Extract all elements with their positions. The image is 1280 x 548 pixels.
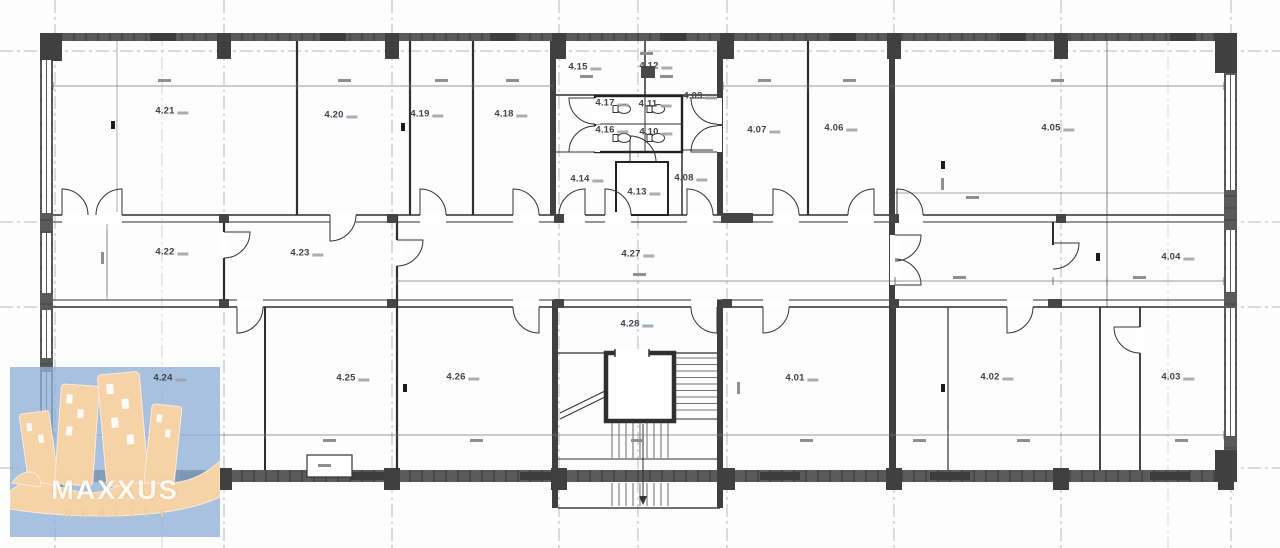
room-area-smudge	[618, 131, 629, 134]
room-number: 4.13	[627, 187, 646, 198]
room-area-smudge	[176, 379, 187, 382]
room-label-4.12: 4.12	[639, 61, 672, 72]
room-label-4.02: 4.02	[980, 372, 1013, 383]
room-number: 4.18	[494, 109, 513, 120]
room-label-4.19: 4.19	[410, 109, 443, 120]
room-label-4.11: 4.11	[639, 99, 672, 110]
room-number: 4.21	[155, 106, 174, 117]
room-number: 4.14	[570, 174, 589, 185]
room-number: 4.28	[620, 319, 639, 330]
room-label-4.26: 4.26	[446, 372, 479, 383]
room-label-4.09: 4.09	[683, 91, 716, 102]
room-label-4.10: 4.10	[639, 127, 672, 138]
room-area-smudge	[643, 325, 654, 328]
room-area-smudge	[591, 68, 602, 71]
room-number: 4.01	[785, 373, 804, 384]
floor-plan-page: MAXXUS REALITY 4.214.204.194.184.154.124…	[0, 0, 1280, 548]
elevator-shaft	[606, 353, 674, 421]
room-area-smudge	[660, 105, 671, 108]
room-area-smudge	[1184, 378, 1195, 381]
logo-subtitle: REALITY	[10, 508, 220, 520]
room-label-4.04: 4.04	[1161, 252, 1194, 263]
room-label-4.18: 4.18	[494, 109, 527, 120]
room-area-smudge	[1184, 258, 1195, 261]
room-area-smudge	[178, 253, 189, 256]
room-number: 4.07	[747, 125, 766, 136]
room-area-smudge	[347, 116, 358, 119]
logo-title: MAXXUS	[10, 475, 220, 506]
room-number: 4.25	[336, 373, 355, 384]
room-number: 4.16	[595, 125, 614, 136]
room-area-smudge	[697, 179, 708, 182]
room-label-4.22: 4.22	[155, 247, 188, 258]
room-number: 4.23	[290, 248, 309, 259]
room-area-smudge	[618, 104, 629, 107]
room-label-4.05: 4.05	[1041, 123, 1074, 134]
room-number: 4.17	[595, 98, 614, 109]
room-number: 4.08	[674, 173, 693, 184]
room-number: 4.12	[639, 61, 658, 72]
room-label-4.03: 4.03	[1161, 372, 1194, 383]
room-area-smudge	[644, 255, 655, 258]
room-label-4.01: 4.01	[785, 373, 818, 384]
maxxus-logo: MAXXUS REALITY	[10, 367, 220, 537]
room-number: 4.09	[683, 91, 702, 102]
room-number: 4.04	[1161, 252, 1180, 263]
room-area-smudge	[662, 67, 673, 70]
room-label-4.08: 4.08	[674, 173, 707, 184]
room-area-smudge	[517, 115, 528, 118]
room-label-4.25: 4.25	[336, 373, 369, 384]
room-label-4.07: 4.07	[747, 125, 780, 136]
room-number: 4.19	[410, 109, 429, 120]
room-number: 4.11	[639, 99, 658, 110]
room-label-4.16: 4.16	[595, 125, 628, 136]
room-area-smudge	[178, 112, 189, 115]
room-label-4.15: 4.15	[568, 62, 601, 73]
room-label-4.13: 4.13	[627, 187, 660, 198]
room-label-4.23: 4.23	[290, 248, 323, 259]
room-label-4.06: 4.06	[824, 123, 857, 134]
room-label-4.20: 4.20	[324, 110, 357, 121]
room-area-smudge	[808, 379, 819, 382]
room-area-smudge	[359, 379, 370, 382]
room-area-smudge	[650, 193, 661, 196]
room-number: 4.02	[980, 372, 999, 383]
room-label-4.17: 4.17	[595, 98, 628, 109]
room-area-smudge	[847, 129, 858, 132]
room-label-4.28: 4.28	[620, 319, 653, 330]
room-number: 4.26	[446, 372, 465, 383]
room-number: 4.20	[324, 110, 343, 121]
room-area-smudge	[469, 378, 480, 381]
room-number: 4.05	[1041, 123, 1060, 134]
room-area-smudge	[1003, 378, 1014, 381]
room-label-4.14: 4.14	[570, 174, 603, 185]
room-number: 4.24	[153, 373, 172, 384]
room-area-smudge	[662, 133, 673, 136]
room-label-4.24: 4.24	[153, 373, 186, 384]
room-label-4.27: 4.27	[621, 249, 654, 260]
room-number: 4.22	[155, 247, 174, 258]
room-area-smudge	[593, 180, 604, 183]
room-area-smudge	[706, 97, 717, 100]
room-number: 4.03	[1161, 372, 1180, 383]
room-area-smudge	[1064, 129, 1075, 132]
room-number: 4.27	[621, 249, 640, 260]
room-number: 4.06	[824, 123, 843, 134]
corridor-piers	[219, 213, 1066, 308]
room-number: 4.15	[568, 62, 587, 73]
room-number: 4.10	[639, 127, 658, 138]
room-area-smudge	[313, 254, 324, 257]
room-area-smudge	[770, 131, 781, 134]
room-area-smudge	[433, 115, 444, 118]
room-label-4.21: 4.21	[155, 106, 188, 117]
